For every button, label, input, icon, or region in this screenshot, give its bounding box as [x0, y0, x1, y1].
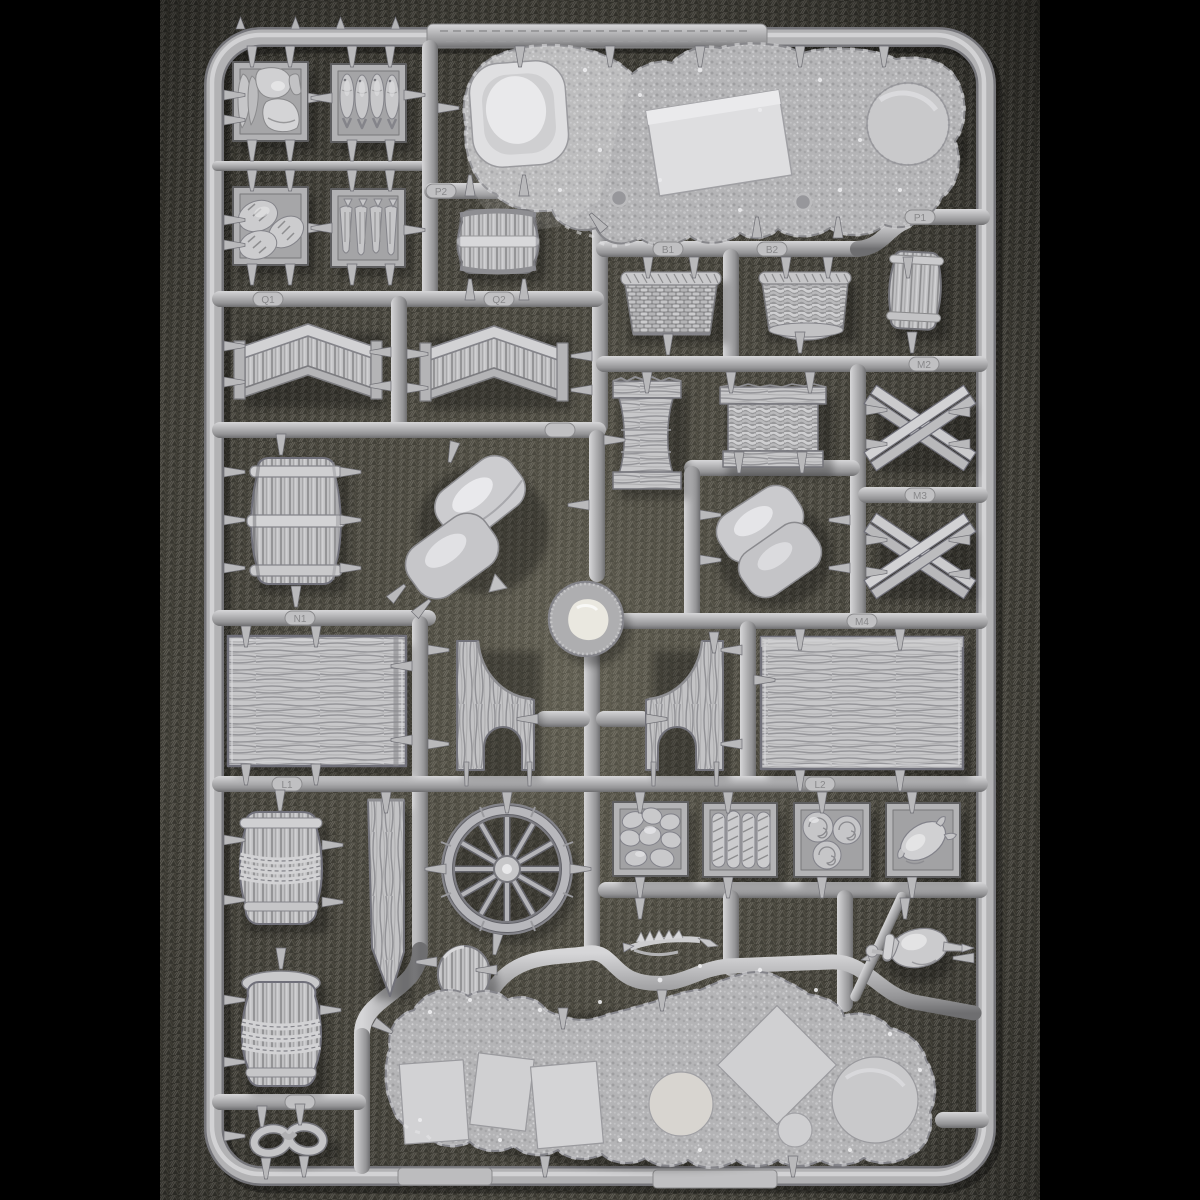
svg-text:B2: B2	[766, 245, 779, 256]
svg-text:P1: P1	[914, 213, 927, 224]
svg-text:M2: M2	[917, 360, 931, 371]
svg-text:M3: M3	[913, 491, 927, 502]
svg-text:Q2: Q2	[492, 295, 506, 306]
svg-text:B1: B1	[662, 245, 675, 256]
svg-text:L1: L1	[281, 780, 293, 791]
svg-text:Q1: Q1	[261, 295, 275, 306]
svg-text:L2: L2	[814, 780, 826, 791]
svg-text:P2: P2	[435, 187, 448, 198]
svg-text:N1: N1	[294, 614, 307, 625]
svg-text:M4: M4	[855, 617, 869, 628]
